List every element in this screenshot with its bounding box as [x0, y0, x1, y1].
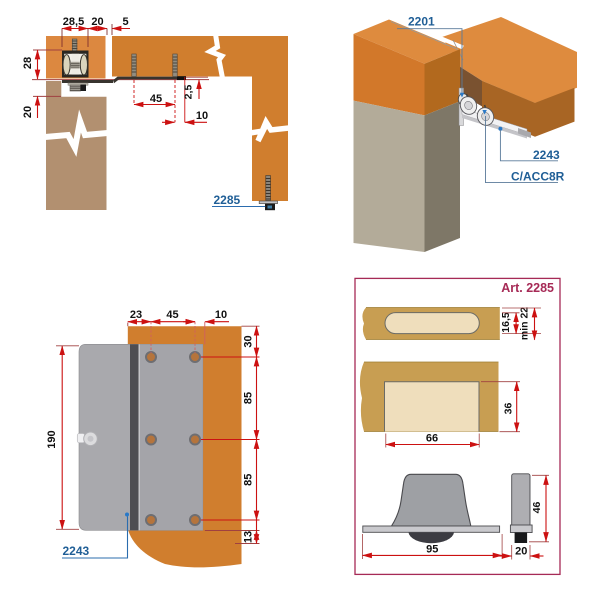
svg-text:66: 66 [426, 433, 438, 445]
svg-text:46: 46 [531, 502, 543, 514]
svg-text:95: 95 [426, 544, 438, 556]
svg-text:2,5: 2,5 [183, 85, 195, 100]
svg-text:28: 28 [22, 57, 34, 69]
svg-text:85: 85 [243, 392, 255, 404]
svg-text:Art. 2285: Art. 2285 [501, 281, 554, 295]
svg-text:20: 20 [22, 106, 34, 118]
svg-text:190: 190 [46, 430, 58, 448]
svg-text:28,5: 28,5 [63, 16, 84, 28]
svg-text:10: 10 [196, 110, 208, 122]
svg-text:16,5: 16,5 [500, 312, 512, 333]
svg-text:10: 10 [215, 309, 227, 321]
svg-text:36: 36 [503, 403, 515, 415]
svg-text:85: 85 [243, 474, 255, 486]
svg-text:45: 45 [150, 93, 162, 105]
svg-text:13: 13 [243, 531, 255, 543]
svg-text:2243: 2243 [533, 148, 560, 162]
svg-text:5: 5 [122, 16, 128, 28]
svg-text:2201: 2201 [408, 15, 435, 29]
svg-text:2243: 2243 [63, 544, 90, 558]
svg-text:23: 23 [130, 309, 142, 321]
svg-text:min 22: min 22 [519, 307, 531, 340]
svg-text:30: 30 [243, 335, 255, 347]
svg-text:20: 20 [515, 546, 527, 558]
svg-text:2285: 2285 [214, 193, 241, 207]
svg-text:20: 20 [91, 16, 103, 28]
svg-text:45: 45 [166, 309, 178, 321]
svg-text:C/ACC8R: C/ACC8R [511, 170, 565, 184]
